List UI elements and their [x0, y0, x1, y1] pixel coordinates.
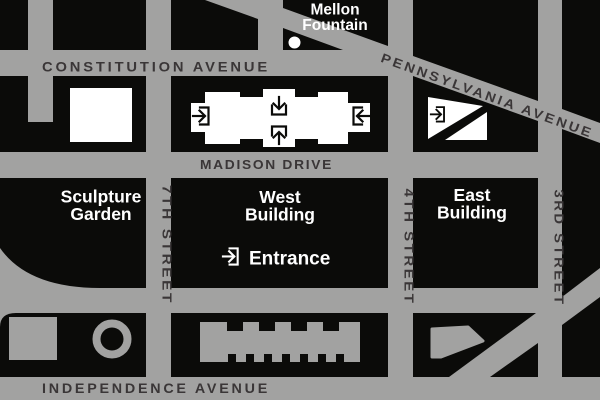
nga-area-map: CONSTITUTION AVENUE PENNSYLVANIA AVENUE … [0, 0, 600, 400]
street-label-constitution-avenue: CONSTITUTION AVENUE [42, 60, 270, 75]
mellon-fountain-label-line1: Mellon [310, 2, 359, 19]
west-building-label-line2: Building [245, 205, 315, 225]
mellon-fountain-label-line2: Fountain [302, 17, 367, 34]
block-southeast-corner [562, 297, 600, 377]
block-northeast-corner [562, 0, 600, 123]
street-label-independence-avenue: INDEPENDENCE AVENUE [42, 381, 270, 396]
block-north-of-constitution-west [53, 0, 146, 50]
street-label-7th-street: 7TH STREET [160, 185, 175, 305]
street-label-4th-street: 4TH STREET [402, 189, 417, 306]
sculpture-garden-label: Sculpture Garden [61, 187, 142, 225]
map-canvas: CONSTITUTION AVENUE PENNSYLVANIA AVENUE … [0, 0, 600, 400]
block-east-of-3rd [562, 129, 600, 297]
west-building-plan [191, 89, 370, 147]
entrance-label: Entrance [249, 249, 330, 270]
street-label-madison-drive: MADISON DRIVE [200, 157, 333, 172]
sculpture-garden-label-line2: Garden [70, 204, 131, 224]
block-north-of-constitution-6th [171, 0, 258, 50]
east-building-label-line2: Building [437, 203, 507, 223]
street-stub-west [28, 76, 53, 122]
mellon-fountain-label: Mellon Fountain [302, 2, 367, 35]
street-label-3rd-street: 3RD STREET [552, 190, 567, 307]
block-triangle-west-of-3rd [490, 343, 538, 377]
mellon-fountain-dot [289, 37, 301, 49]
block-northwest-corner [0, 0, 28, 50]
sculpture-garden-footprint [70, 88, 132, 142]
building-square-footprint [9, 317, 57, 360]
